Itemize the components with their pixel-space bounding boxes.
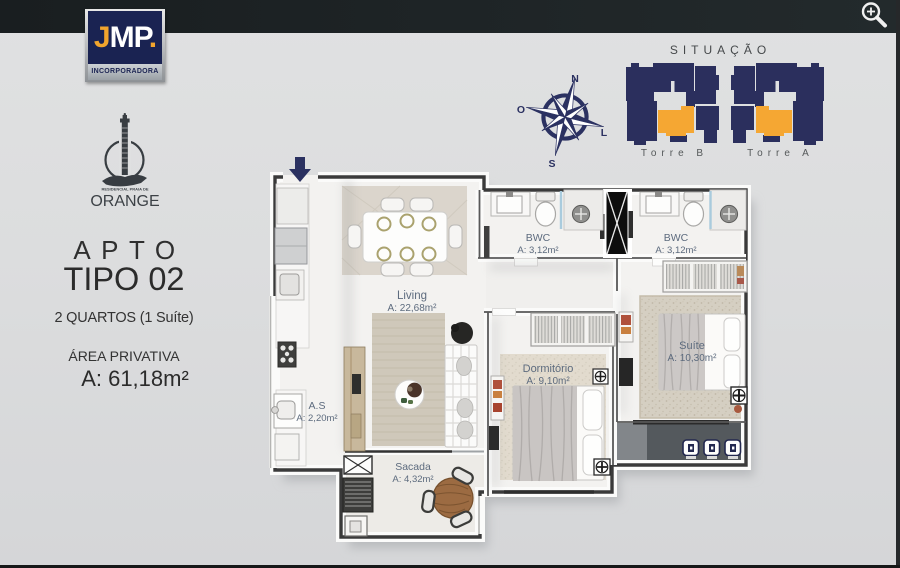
svg-text:A.S: A.S: [309, 400, 326, 412]
svg-text:A: 3,12m²: A: 3,12m²: [517, 245, 558, 256]
svg-text:A: 10,30m²: A: 10,30m²: [668, 353, 718, 364]
svg-text:Living: Living: [397, 290, 427, 302]
svg-text:A: 4,32m²: A: 4,32m²: [392, 474, 433, 485]
svg-text:BWC: BWC: [526, 232, 551, 244]
svg-text:A: 3,12m²: A: 3,12m²: [655, 245, 696, 256]
svg-text:A: 22,68m²: A: 22,68m²: [388, 303, 438, 314]
svg-text:BWC: BWC: [664, 232, 689, 244]
svg-text:Suíte: Suíte: [679, 340, 705, 352]
svg-text:Sacada: Sacada: [395, 461, 431, 473]
svg-text:A: 2,20m²: A: 2,20m²: [296, 413, 337, 424]
svg-text:A: 9,10m²: A: 9,10m²: [526, 376, 570, 387]
svg-text:Dormitório: Dormitório: [523, 363, 574, 375]
